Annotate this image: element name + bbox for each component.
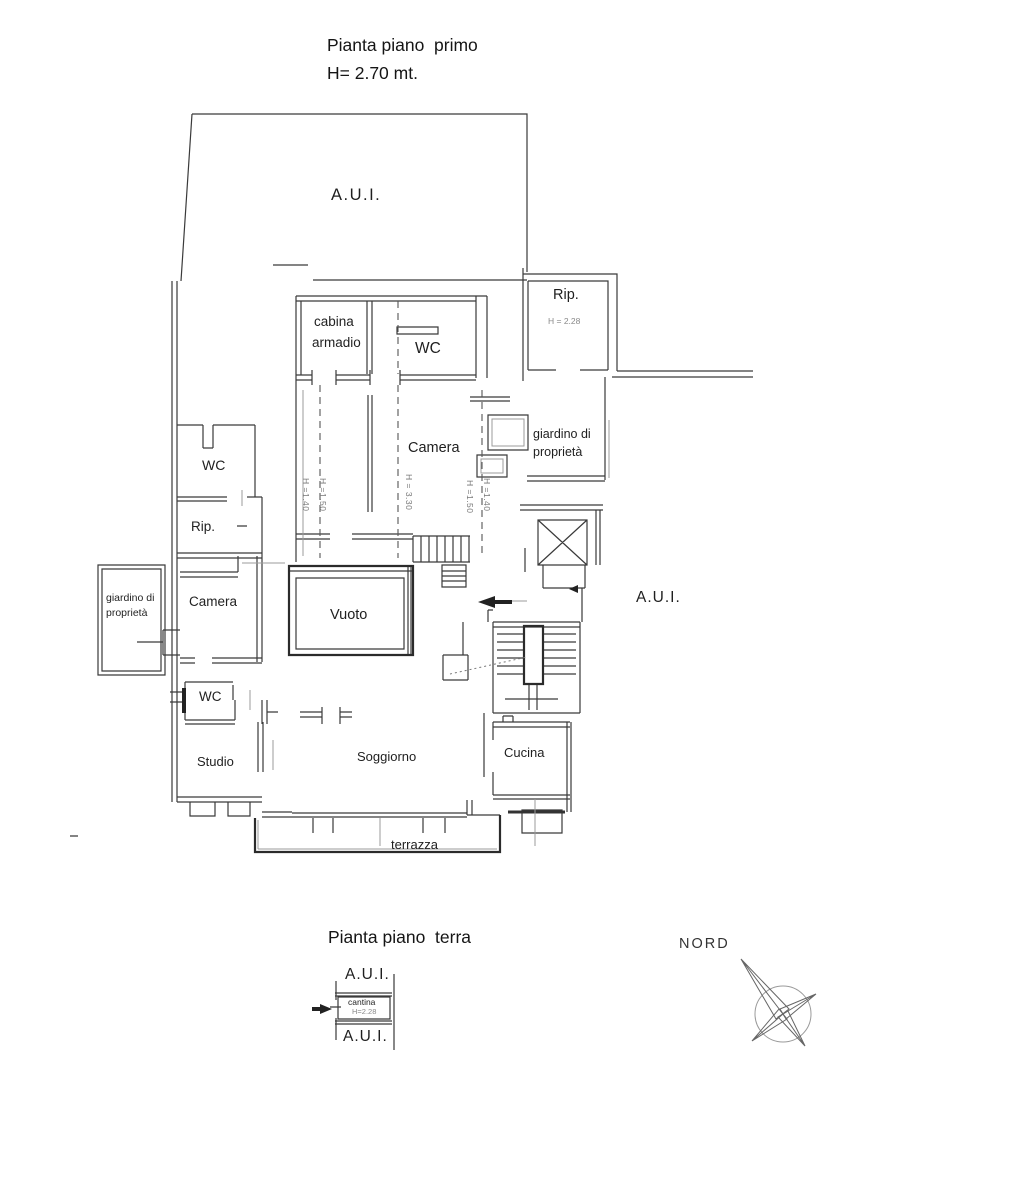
room-label-vuoto: Vuoto bbox=[330, 608, 367, 624]
height-mark-3: H = 3.30 bbox=[404, 474, 414, 510]
gf-label-aui-lower: A.U.I. bbox=[343, 1028, 388, 1045]
garden-right-label-line1: giardino di bbox=[533, 428, 591, 442]
room-label-aui-right: A.U.I. bbox=[636, 589, 681, 606]
room-label-wc-left: WC bbox=[202, 458, 225, 473]
room-label-wc-top: WC bbox=[415, 340, 441, 357]
room-label-wc-lower: WC bbox=[199, 690, 222, 705]
height-mark-5: H =1.40 bbox=[482, 478, 492, 512]
wall-fill-black bbox=[182, 688, 186, 713]
room-label-cucina: Cucina bbox=[504, 746, 544, 760]
upper-plan-title: Pianta piano primo bbox=[327, 36, 478, 55]
room-label-camera-left: Camera bbox=[189, 595, 237, 610]
room-label-cabina-line2: armadio bbox=[312, 336, 361, 351]
compass-rose-icon bbox=[741, 959, 816, 1046]
walls-main bbox=[70, 114, 753, 1050]
plan-linework bbox=[0, 0, 1033, 1199]
garden-left-label-line1: giardino di bbox=[106, 593, 154, 605]
compass-nord-label: NORD bbox=[679, 937, 730, 953]
floorplan-page: { "plan_upper": { "title": "Pianta piano… bbox=[0, 0, 1033, 1199]
room-label-soggiorno: Soggiorno bbox=[357, 750, 416, 764]
height-mark-4: H =1.50 bbox=[465, 480, 475, 514]
room-label-aui-top: A.U.I. bbox=[331, 186, 381, 204]
room-label-studio: Studio bbox=[197, 755, 234, 769]
walls-thick bbox=[255, 566, 543, 852]
lower-plan-title: Pianta piano terra bbox=[328, 928, 471, 947]
garden-left-label-line2: proprietà bbox=[106, 608, 147, 620]
room-label-cabina-line1: cabina bbox=[314, 315, 354, 330]
gf-label-aui-upper: A.U.I. bbox=[345, 966, 390, 983]
upper-plan-subtitle: H= 2.70 mt. bbox=[327, 64, 418, 83]
ground-entry-arrow-icon bbox=[312, 1004, 332, 1014]
rip-height-note: H = 2.28 bbox=[548, 317, 580, 326]
height-mark-2: H =1.50 bbox=[318, 478, 328, 512]
room-label-terrazza: terrazza bbox=[391, 838, 438, 852]
garden-right-label-line2: proprietà bbox=[533, 446, 582, 460]
room-label-rip-left: Rip. bbox=[191, 520, 215, 535]
room-label-rip-top: Rip. bbox=[553, 288, 579, 304]
room-label-camera-main: Camera bbox=[408, 441, 460, 457]
gf-cantina-height-note: H=2.28 bbox=[352, 1008, 376, 1016]
gf-label-cantina: cantina bbox=[348, 998, 375, 1007]
height-mark-1: H =1.40 bbox=[301, 478, 311, 512]
